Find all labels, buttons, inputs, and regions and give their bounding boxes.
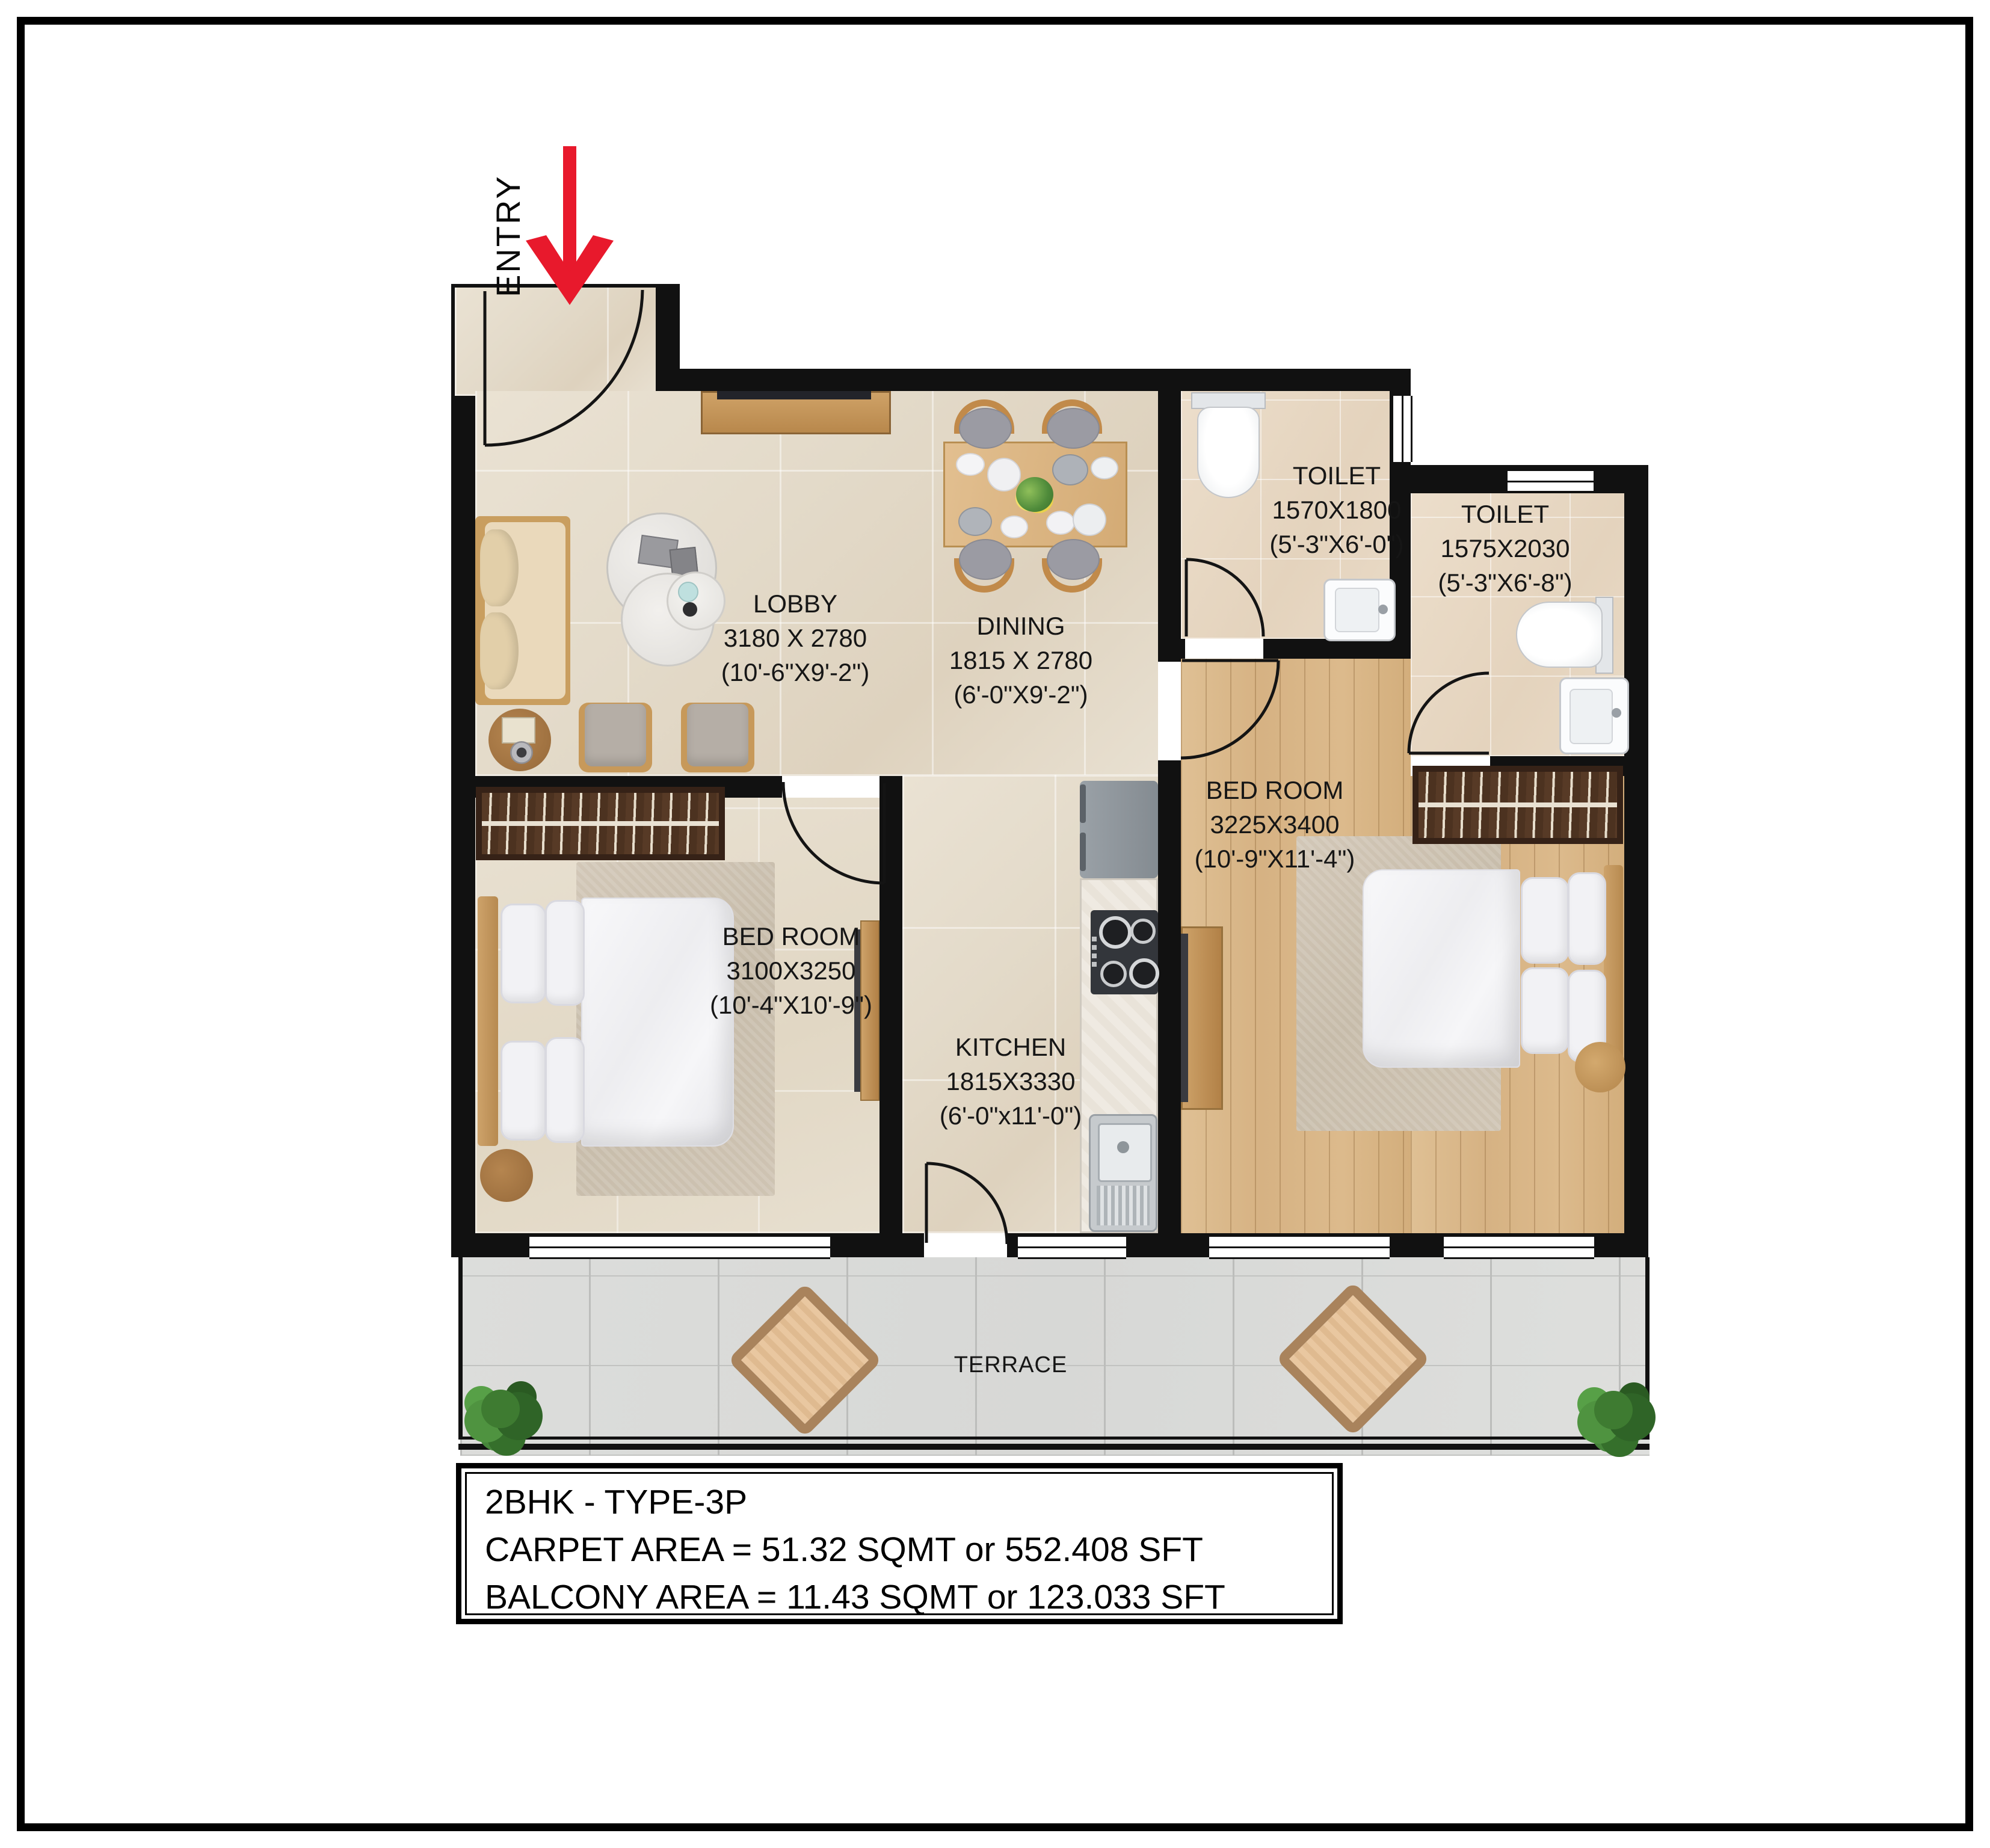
armchair: [681, 703, 754, 772]
window: [1508, 469, 1594, 493]
plate: [1091, 457, 1118, 479]
dining-chair: [959, 539, 1012, 580]
wardrobe: [476, 787, 725, 860]
room-dim-mm: 1570X1800: [1269, 493, 1403, 527]
wall: [1624, 465, 1648, 1257]
basin-bowl: [1570, 689, 1613, 744]
refrigerator: [1080, 781, 1158, 878]
label-kitchen: KITCHEN 1815X3330 (6'-0"x11'-0"): [940, 1030, 1082, 1133]
bedside-table: [480, 1149, 533, 1202]
terrace-edge: [458, 1257, 463, 1439]
room-name: BED ROOM: [1195, 773, 1355, 807]
fridge-handle: [1080, 833, 1086, 871]
plant: [481, 1390, 520, 1428]
room-dim-ft: (6'-0"X9'-2"): [949, 677, 1092, 712]
dining-chair: [1047, 539, 1100, 580]
burner: [1130, 919, 1156, 944]
room-dim-ft: (10'-4"X10'-9"): [710, 988, 872, 1022]
dining-chair: [1047, 408, 1100, 449]
bed-headboard: [478, 896, 498, 1146]
room-dim-mm: 1815X3330: [940, 1064, 1082, 1098]
burner: [1129, 958, 1159, 988]
wall: [656, 369, 1411, 391]
faucet: [1612, 708, 1621, 718]
side-table-plate: [510, 741, 533, 764]
pillow: [1521, 967, 1569, 1054]
balcony-area: BALCONY AREA = 11.43 SQMT or 123.033 SFT: [485, 1574, 1332, 1621]
basin-bowl: [1335, 588, 1379, 632]
pillow: [501, 1041, 546, 1141]
floor-plan-page: ENTRY LOBBY 3180 X 2780 (10'-6"X9'-2") D…: [0, 0, 1990, 1848]
room-dim-ft: (10'-9"X11'-4"): [1195, 842, 1355, 876]
pillow: [545, 1037, 585, 1143]
bedside-table: [1575, 1042, 1625, 1092]
room-dim-mm: 1575X2030: [1438, 531, 1572, 565]
sofa-cushion: [480, 529, 519, 606]
label-bedroom-right: BED ROOM 3225X3400 (10'-9"X11'-4"): [1195, 773, 1355, 876]
window: [529, 1235, 830, 1259]
wall: [1158, 369, 1181, 662]
room-dim-ft: (5'-3"X6'-8"): [1438, 565, 1572, 600]
label-dining: DINING 1815 X 2780 (6'-0"X9'-2"): [949, 609, 1092, 712]
info-box-inner: 2BHK - TYPE-3P CARPET AREA = 51.32 SQMT …: [465, 1472, 1334, 1615]
wash-basin: [1559, 677, 1629, 754]
room-name: DINING: [949, 609, 1092, 643]
pillow: [1568, 872, 1606, 965]
label-terrace: TERRACE: [954, 1352, 1068, 1378]
carpet-area: CARPET AREA = 51.32 SQMT or 552.408 SFT: [485, 1526, 1332, 1574]
plate: [1000, 516, 1028, 538]
burner: [1100, 961, 1127, 987]
tv: [1181, 934, 1188, 1102]
room-name: TOILET: [1438, 497, 1572, 531]
room-dim-mm: 3225X3400: [1195, 807, 1355, 842]
pillow: [1521, 877, 1569, 964]
room-name: BED ROOM: [710, 919, 872, 953]
flower-centerpiece: [1016, 477, 1053, 512]
terrace-railing: [458, 1437, 1650, 1440]
wash-basin: [1323, 579, 1396, 641]
fridge-handle: [1080, 784, 1086, 823]
entry-floor: [455, 288, 656, 396]
pillow: [545, 900, 585, 1006]
room-dim-mm: 3100X3250: [710, 953, 872, 988]
window: [1209, 1235, 1390, 1259]
terrace-railing: [458, 1444, 1650, 1450]
room-dim-mm: 1815 X 2780: [949, 643, 1092, 677]
terrace-edge: [1645, 1257, 1650, 1439]
bed-duvet: [1363, 869, 1520, 1068]
sofa-cushion: [480, 612, 519, 689]
entry-label: ENTRY: [488, 140, 532, 297]
plate: [1073, 504, 1106, 536]
room-dim-mm: 3180 X 2780: [721, 621, 870, 655]
dining-chair: [959, 408, 1012, 449]
info-box: 2BHK - TYPE-3P CARPET AREA = 51.32 SQMT …: [456, 1463, 1343, 1624]
coffee-table-bowl: [683, 602, 697, 617]
window: [1018, 1235, 1126, 1259]
window: [1444, 1235, 1594, 1259]
wall: [451, 284, 475, 1257]
burner: [1099, 916, 1132, 949]
armchair: [579, 703, 652, 772]
toilet-bowl: [1516, 602, 1603, 668]
plate: [987, 458, 1021, 491]
room-dim-ft: (5'-3"X6'-0"): [1269, 527, 1403, 561]
plate: [958, 507, 992, 536]
sofa: [475, 516, 570, 705]
label-bedroom-left: BED ROOM 3100X3250 (10'-4"X10'-9"): [710, 919, 872, 1022]
window: [1391, 396, 1412, 462]
room-name: TOILET: [1269, 458, 1403, 493]
label-toilet-2: TOILET 1575X2030 (5'-3"X6'-8"): [1438, 497, 1572, 600]
unit-type: 2BHK - TYPE-3P: [485, 1479, 1332, 1526]
plate: [1052, 454, 1088, 485]
room-name: KITCHEN: [940, 1030, 1082, 1064]
label-toilet-1: TOILET 1570X1800 (5'-3"X6'-0"): [1269, 458, 1403, 561]
pillow: [501, 904, 546, 1003]
label-lobby: LOBBY 3180 X 2780 (10'-6"X9'-2"): [721, 587, 870, 689]
tv: [717, 391, 871, 399]
side-table: [488, 709, 551, 771]
armchair-cushion: [687, 704, 748, 766]
plant: [1594, 1391, 1633, 1429]
stove-knobs: [1092, 937, 1097, 968]
sink-drain: [1117, 1141, 1129, 1153]
bed-headboard: [1604, 865, 1623, 1070]
wall: [1166, 638, 1185, 659]
plate: [1046, 511, 1075, 535]
armchair-cushion: [585, 704, 646, 766]
side-table-book: [502, 717, 535, 744]
coffee-table-small: [667, 571, 725, 630]
toilet-bowl: [1197, 407, 1260, 498]
gas-stove: [1091, 910, 1158, 994]
wall: [879, 775, 902, 1233]
room-dim-ft: (10'-6"X9'-2"): [721, 655, 870, 689]
sink-drainboard: [1097, 1186, 1150, 1225]
dining-table: [943, 442, 1127, 547]
plate: [956, 453, 985, 476]
room-dim-ft: (6'-0"x11'-0"): [940, 1098, 1082, 1133]
wardrobe: [1412, 766, 1623, 844]
kitchen-sink: [1089, 1114, 1157, 1232]
room-name: LOBBY: [721, 587, 870, 621]
coffee-table-cup: [678, 582, 698, 602]
faucet: [1378, 605, 1388, 614]
wall: [1158, 760, 1181, 1233]
